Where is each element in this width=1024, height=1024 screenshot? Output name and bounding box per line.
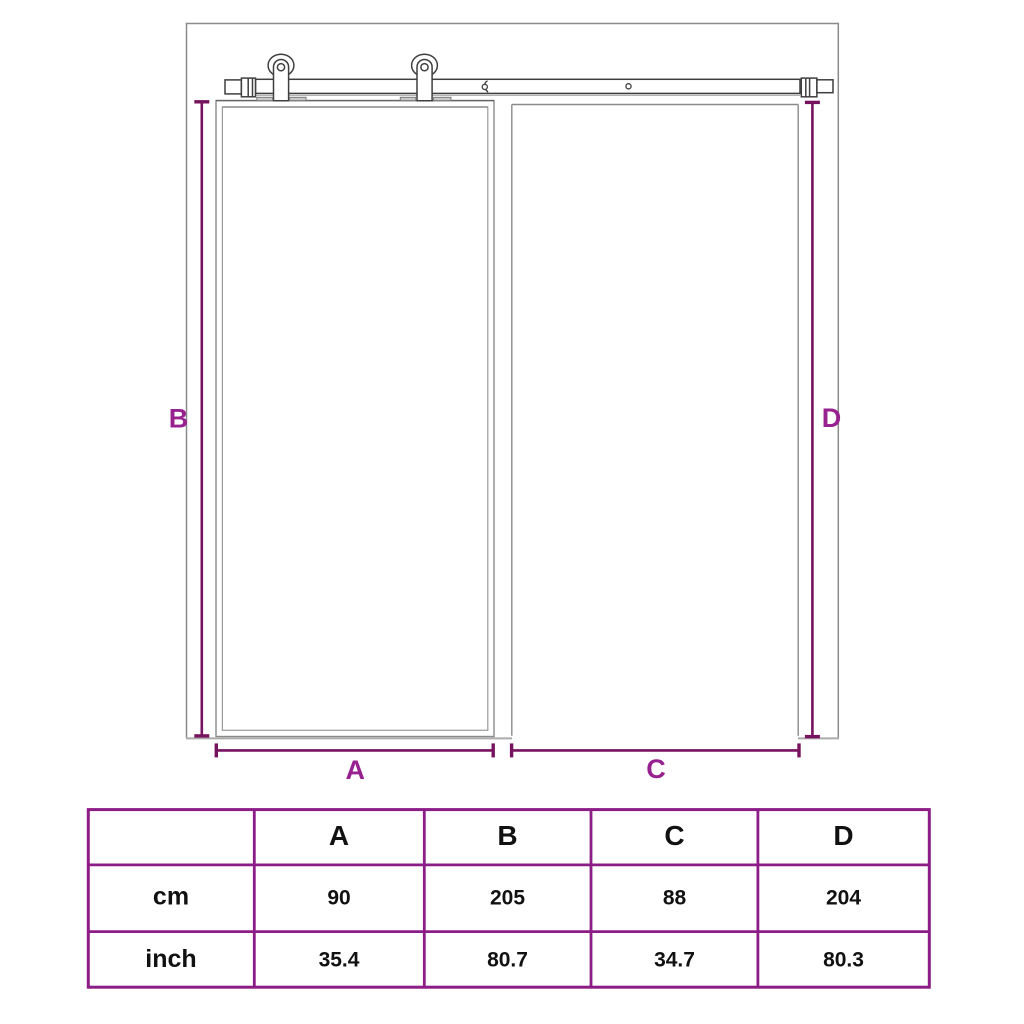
- svg-text:204: 204: [826, 886, 861, 909]
- svg-text:D: D: [833, 820, 853, 851]
- svg-text:D: D: [822, 403, 842, 433]
- svg-text:90: 90: [327, 886, 350, 909]
- svg-text:A: A: [329, 820, 349, 851]
- svg-text:C: C: [646, 754, 666, 784]
- svg-text:inch: inch: [145, 945, 196, 973]
- svg-text:B: B: [169, 403, 189, 433]
- svg-text:A: A: [345, 755, 365, 785]
- svg-text:80.7: 80.7: [487, 948, 528, 971]
- svg-text:205: 205: [490, 886, 525, 909]
- svg-text:B: B: [497, 820, 517, 851]
- svg-text:80.3: 80.3: [823, 948, 864, 971]
- svg-text:34.7: 34.7: [654, 948, 695, 971]
- svg-text:C: C: [664, 820, 684, 851]
- svg-text:88: 88: [663, 886, 687, 909]
- svg-text:35.4: 35.4: [319, 948, 360, 971]
- svg-text:cm: cm: [153, 883, 189, 911]
